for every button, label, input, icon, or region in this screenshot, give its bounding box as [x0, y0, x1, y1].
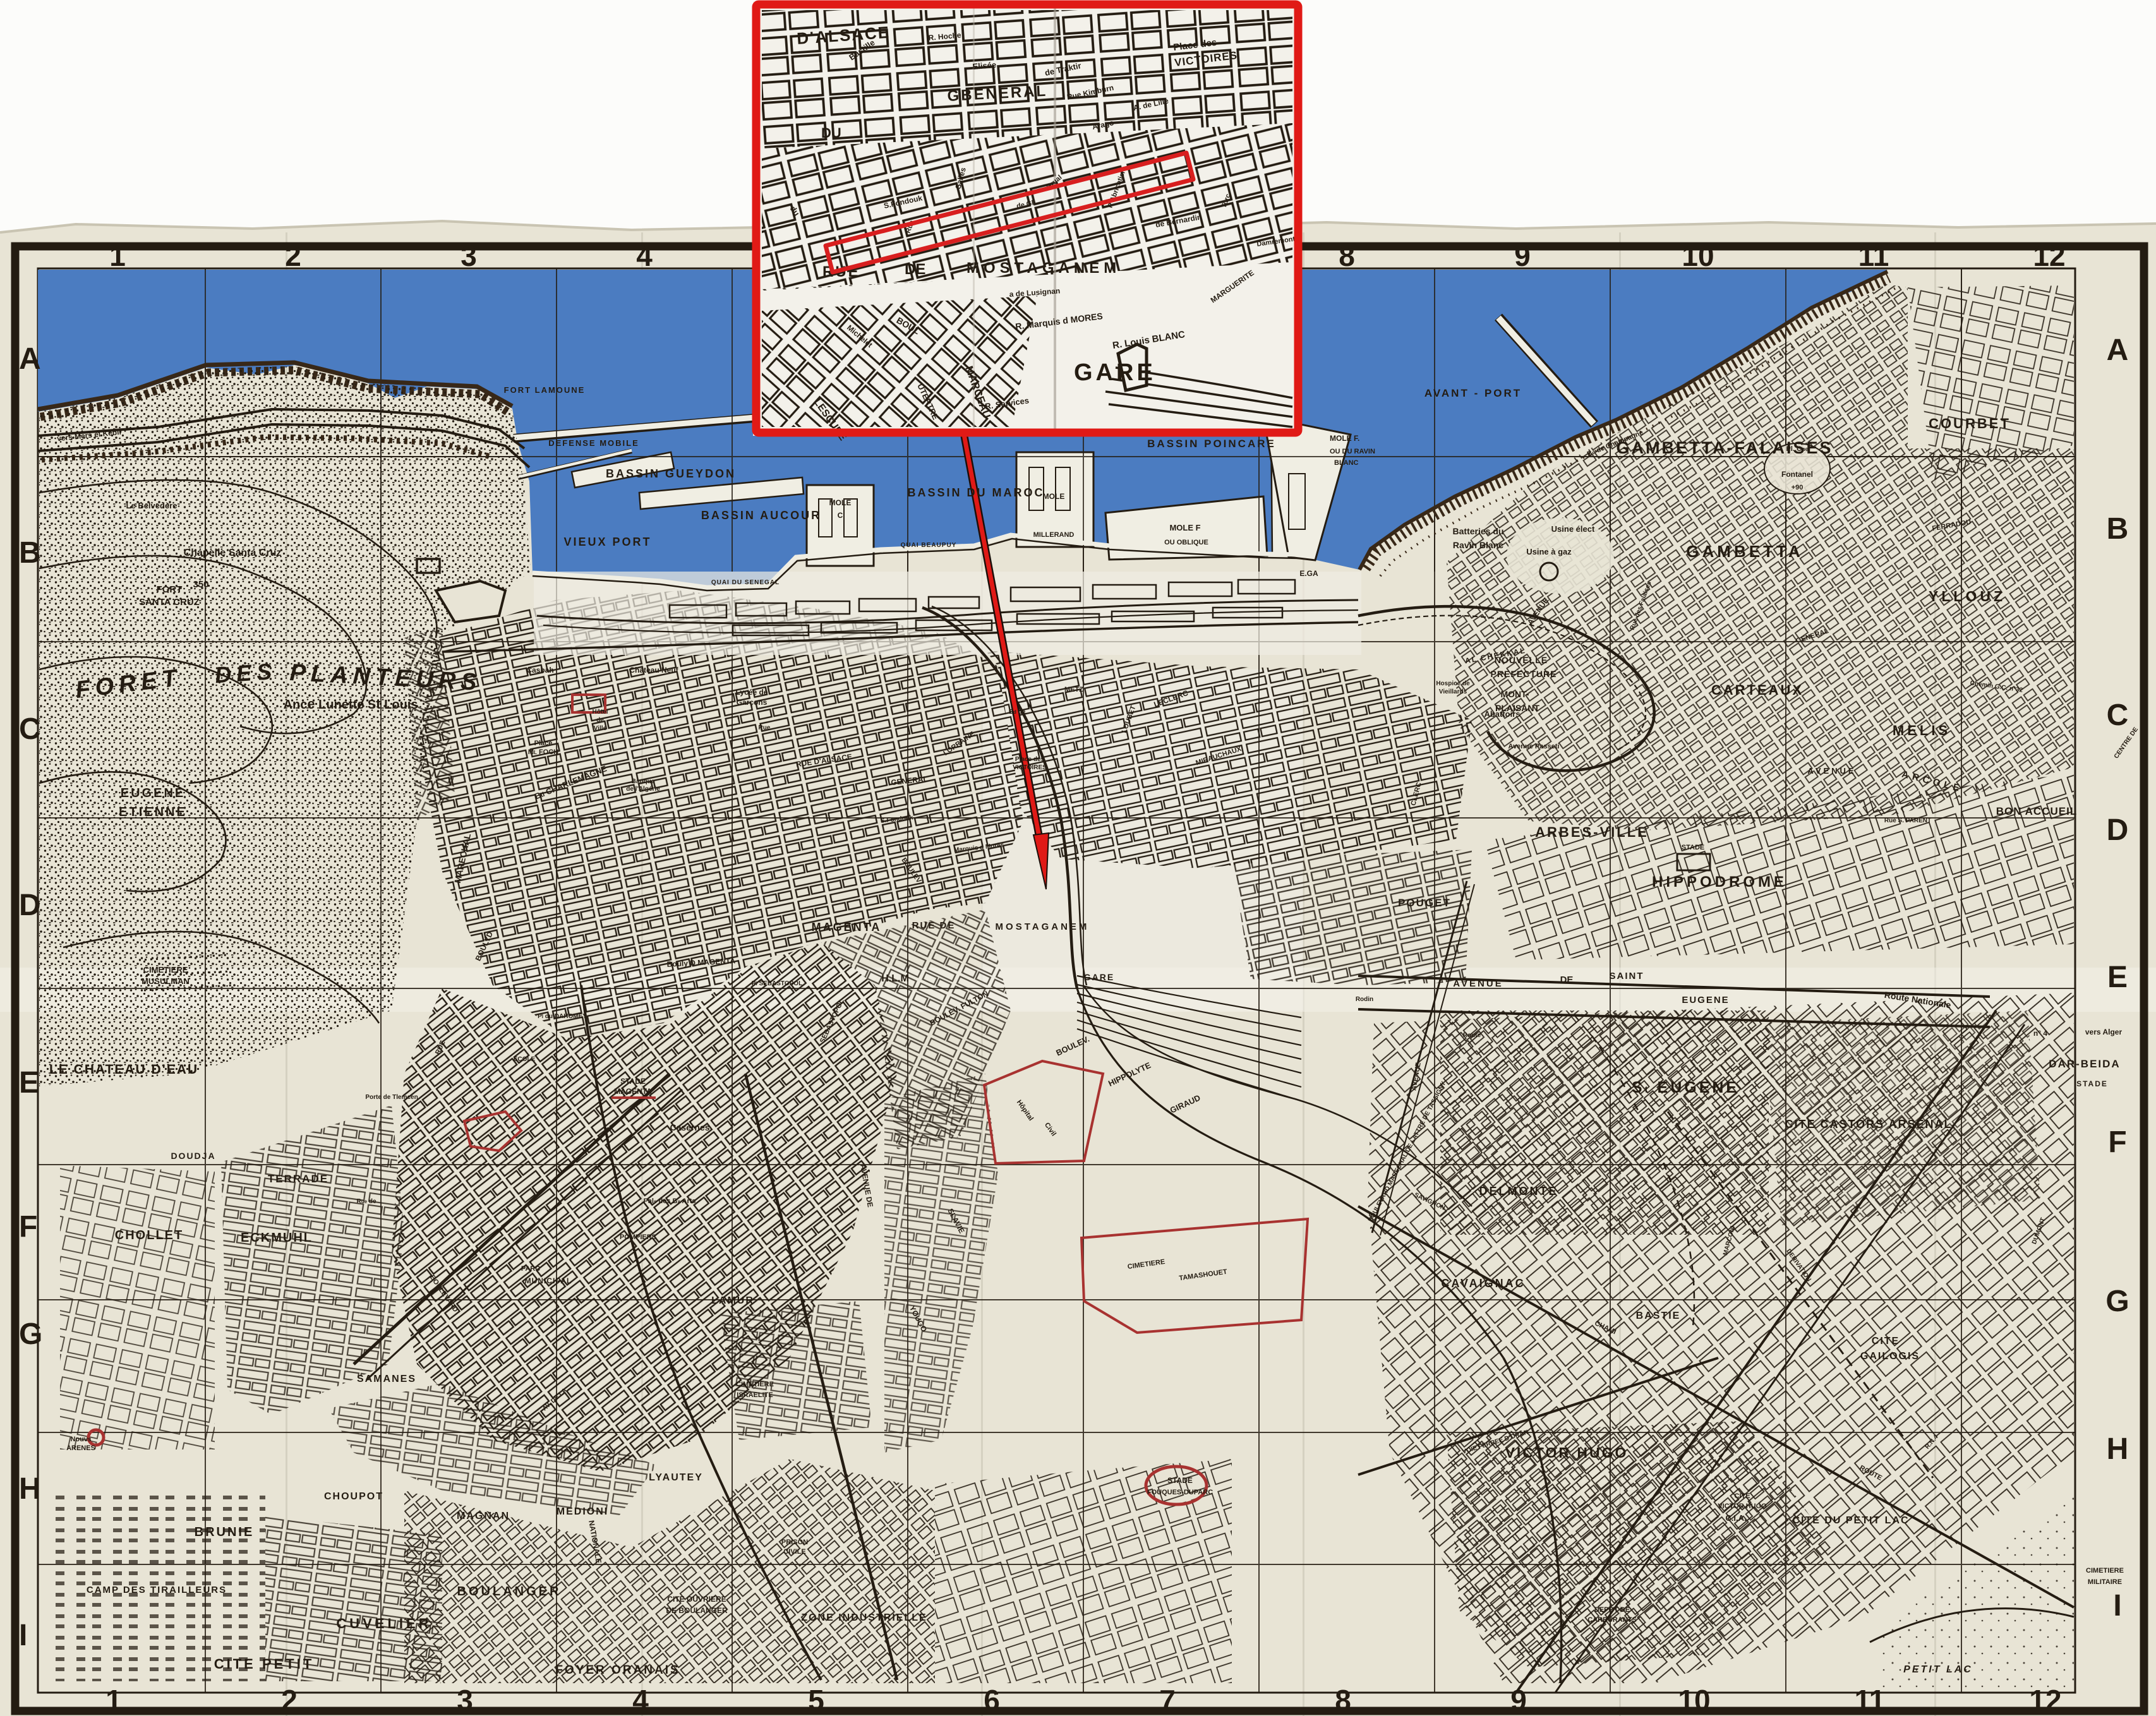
svg-text:PETIT LAC: PETIT LAC — [1903, 1664, 1973, 1675]
svg-text:Chateau Neuf: Chateau Neuf — [629, 666, 678, 675]
svg-text:Pl du DAHOMEY: Pl du DAHOMEY — [538, 1013, 587, 1020]
svg-text:A: A — [19, 342, 41, 376]
svg-text:Casernes: Casernes — [670, 1122, 709, 1132]
svg-text:VICTOR HUGO: VICTOR HUGO — [1505, 1444, 1629, 1461]
svg-text:MUSULMAN: MUSULMAN — [142, 976, 190, 986]
svg-text:DE BOULANGER: DE BOULANGER — [666, 1606, 728, 1615]
svg-text:Chapelle Santa Cruz: Chapelle Santa Cruz — [184, 548, 282, 558]
svg-text:MONT-: MONT- — [1500, 689, 1529, 699]
svg-text:C: C — [19, 712, 41, 746]
svg-text:ISRAELITE: ISRAELITE — [737, 1391, 773, 1399]
svg-text:1: 1 — [109, 239, 126, 272]
svg-text:MELIS: MELIS — [1893, 723, 1951, 738]
svg-text:FORT LAMOUNE: FORT LAMOUNE — [504, 385, 586, 395]
svg-text:CIMETIERE: CIMETIERE — [2086, 1567, 2124, 1575]
svg-text:MILLERAND: MILLERAND — [1033, 531, 1075, 539]
svg-text:3: 3 — [461, 239, 477, 272]
svg-text:MOSTAGANEM: MOSTAGANEM — [967, 260, 1121, 277]
svg-text:Porte de Tlemcen: Porte de Tlemcen — [365, 1094, 418, 1101]
svg-text:E: E — [19, 1066, 39, 1100]
svg-text:Lycée de: Lycée de — [736, 688, 768, 697]
svg-text:Casbah: Casbah — [526, 666, 553, 675]
svg-text:CITE PETIT: CITE PETIT — [214, 1656, 315, 1672]
svg-text:BASSIN POINCARE: BASSIN POINCARE — [1147, 438, 1276, 450]
svg-text:MOSTAGANEM: MOSTAGANEM — [996, 921, 1090, 932]
svg-text:SAINT: SAINT — [1610, 971, 1644, 981]
svg-text:Route: Route — [1463, 1032, 1481, 1039]
svg-text:EUGENE: EUGENE — [121, 786, 185, 800]
svg-text:A: A — [2107, 333, 2129, 367]
svg-text:ARBES-VILLE: ARBES-VILLE — [1535, 824, 1649, 840]
svg-text:11: 11 — [1855, 1684, 1886, 1716]
svg-text:Banque: Banque — [632, 778, 655, 785]
svg-text:Nouvs: Nouvs — [70, 1436, 92, 1443]
svg-text:QUAI DU SENEGAL: QUAI DU SENEGAL — [711, 579, 780, 586]
svg-text:Fontanel: Fontanel — [1781, 470, 1813, 479]
svg-text:MAGNAN: MAGNAN — [457, 1511, 510, 1521]
svg-text:n° 4: n° 4 — [2033, 1029, 2047, 1038]
svg-text:HIPPODROME: HIPPODROME — [1652, 873, 1787, 891]
svg-text:Hospice de: Hospice de — [1436, 680, 1470, 687]
svg-text:BASSIN GUEYDON: BASSIN GUEYDON — [606, 467, 736, 480]
svg-text:4: 4 — [636, 239, 653, 272]
svg-text:Abattoirs: Abattoirs — [1484, 709, 1520, 719]
svg-text:I: I — [19, 1619, 27, 1652]
svg-text:Usine à gaz: Usine à gaz — [1526, 547, 1572, 556]
svg-text:G: G — [2105, 1285, 2129, 1318]
svg-text:10: 10 — [1682, 239, 1714, 272]
svg-text:350: 350 — [193, 579, 208, 590]
svg-text:FOYER ORANAIS: FOYER ORANAIS — [555, 1664, 680, 1677]
svg-text:OU OBLIQUE: OU OBLIQUE — [1164, 539, 1208, 546]
svg-text:CITE DU PETIT LAC: CITE DU PETIT LAC — [1792, 1515, 1909, 1526]
svg-text:DEFENSE MOBILE: DEFENSE MOBILE — [548, 438, 639, 448]
svg-text:BASSIN AUCOUR: BASSIN AUCOUR — [701, 509, 821, 522]
svg-text:VICTOIRES: VICTOIRES — [1013, 764, 1047, 771]
svg-text:GARE: GARE — [1084, 972, 1114, 982]
svg-text:Pals des Bx Arts: Pals des Bx Arts — [643, 1197, 696, 1205]
svg-text:10: 10 — [1678, 1684, 1710, 1716]
svg-text:2: 2 — [281, 1684, 298, 1716]
svg-text:Ance Lunette St Louis: Ance Lunette St Louis — [284, 696, 418, 712]
svg-text:CITE: CITE — [1734, 1492, 1750, 1500]
svg-text:6: 6 — [984, 1684, 1000, 1716]
svg-text:CITE: CITE — [1872, 1336, 1900, 1347]
svg-text:Rodin: Rodin — [1356, 996, 1373, 1003]
svg-text:Batteries du: Batteries du — [1453, 526, 1504, 536]
svg-text:ZONE INDUSTRIELLE: ZONE INDUSTRIELLE — [801, 1612, 927, 1623]
svg-text:STADE: STADE — [620, 1077, 646, 1086]
svg-text:STADE: STADE — [1682, 844, 1704, 851]
svg-text:C: C — [2107, 699, 2129, 732]
svg-text:3: 3 — [457, 1684, 473, 1716]
svg-text:H: H — [2107, 1432, 2129, 1466]
svg-text:Pl SEBASTOPOL: Pl SEBASTOPOL — [752, 980, 802, 987]
svg-text:+90: +90 — [1792, 484, 1804, 491]
svg-text:MEDIONI: MEDIONI — [557, 1506, 608, 1517]
svg-text:MILITAIRE: MILITAIRE — [2088, 1578, 2122, 1586]
svg-text:CIMETIERE: CIMETIERE — [736, 1381, 774, 1388]
svg-text:H.L.M: H.L.M — [881, 973, 909, 984]
svg-text:AVENUE: AVENUE — [1453, 978, 1503, 989]
svg-text:CAVAIGNAC: CAVAIGNAC — [1441, 1277, 1525, 1290]
svg-text:B: B — [19, 536, 41, 570]
svg-text:LYAUTEY: LYAUTEY — [649, 1472, 703, 1483]
svg-text:BON ACCUEIL: BON ACCUEIL — [1996, 805, 2077, 817]
svg-text:ECOLE: ECOLE — [514, 1056, 536, 1063]
svg-text:B: B — [2107, 512, 2129, 546]
svg-text:TERRADE: TERRADE — [268, 1173, 328, 1185]
svg-text:CARTEAUX: CARTEAUX — [1711, 682, 1804, 698]
svg-text:Le Belvedère: Le Belvedère — [126, 501, 178, 510]
svg-text:DE: DE — [905, 261, 925, 278]
svg-text:11: 11 — [1858, 239, 1889, 272]
svg-text:AVANT - PORT: AVANT - PORT — [1424, 387, 1522, 399]
svg-text:Place des: Place des — [1015, 756, 1045, 763]
svg-text:GARE: GARE — [1074, 359, 1156, 386]
svg-text:CITE OUVRIERE: CITE OUVRIERE — [667, 1595, 726, 1604]
svg-text:COURBET: COURBET — [1929, 416, 2011, 431]
svg-text:BASSIN DU MAROC: BASSIN DU MAROC — [907, 486, 1044, 499]
svg-text:C.I.A.: C.I.A. — [1725, 1513, 1746, 1523]
svg-text:MOLE: MOLE — [829, 498, 852, 507]
svg-text:12: 12 — [2033, 239, 2065, 272]
svg-text:PREFECTURE: PREFECTURE — [1491, 669, 1557, 679]
svg-text:DU: DU — [821, 125, 841, 141]
svg-text:MUNICIPAL: MUNICIPAL — [525, 1276, 572, 1285]
svg-text:4: 4 — [632, 1684, 649, 1716]
svg-text:BLANC: BLANC — [1334, 459, 1359, 467]
svg-text:CHOLLET: CHOLLET — [115, 1228, 183, 1242]
svg-text:STADE: STADE — [2076, 1079, 2108, 1088]
svg-text:BRUNIE: BRUNIE — [195, 1525, 255, 1539]
svg-text:METZ: METZ — [1064, 686, 1083, 693]
svg-text:LAMUR: LAMUR — [711, 1295, 754, 1306]
svg-text:MAGENTA: MAGENTA — [614, 1087, 652, 1096]
svg-text:EUGENE: EUGENE — [1682, 995, 1729, 1005]
svg-text:YLLOUZ: YLLOUZ — [1929, 588, 2006, 604]
svg-text:7: 7 — [1159, 1684, 1176, 1716]
svg-text:Pl. Cne: Pl. Cne — [1786, 445, 1809, 453]
svg-text:E.GA: E.GA — [1299, 569, 1318, 578]
svg-text:CHOUPOT: CHOUPOT — [324, 1491, 383, 1502]
svg-text:FORT: FORT — [157, 584, 183, 595]
svg-text:STADE: STADE — [1167, 1476, 1193, 1485]
svg-text:VICTOR HUGO: VICTOR HUGO — [1718, 1503, 1767, 1510]
svg-text:Avenue Passeti: Avenue Passeti — [1509, 743, 1560, 750]
svg-text:Rue: Rue — [759, 724, 771, 731]
svg-text:Vieillards: Vieillards — [1439, 688, 1467, 695]
svg-text:Usine élect: Usine élect — [1551, 524, 1595, 534]
svg-text:BOULANGER: BOULANGER — [457, 1585, 562, 1599]
svg-text:GAILOGIS: GAILOGIS — [1860, 1351, 1920, 1362]
svg-text:DES: DES — [214, 658, 278, 688]
svg-text:vers Alger: vers Alger — [2085, 1028, 2123, 1036]
svg-text:F: F — [19, 1210, 37, 1244]
svg-text:DE: DE — [1560, 975, 1574, 985]
svg-text:CIMETIERE: CIMETIERE — [143, 965, 188, 975]
svg-text:ETIENNE: ETIENNE — [119, 805, 187, 819]
svg-text:Bd de: Bd de — [1009, 709, 1026, 716]
svg-text:CAMP DES TIRAILLEURS: CAMP DES TIRAILLEURS — [87, 1585, 227, 1595]
svg-text:CARBURANTS: CARBURANTS — [1587, 1616, 1637, 1624]
svg-text:12: 12 — [2029, 1684, 2061, 1716]
svg-text:MOLE: MOLE — [1043, 492, 1065, 501]
svg-text:CITE CASTORS ARSENAL: CITE CASTORS ARSENAL — [1785, 1118, 1952, 1131]
svg-text:MAGENTA: MAGENTA — [812, 921, 882, 933]
svg-text:PRISON: PRISON — [781, 1539, 808, 1546]
svg-text:1: 1 — [105, 1684, 122, 1716]
svg-text:G: G — [19, 1317, 42, 1351]
svg-text:MOLE F: MOLE F — [1169, 523, 1200, 532]
svg-text:DOUDJA: DOUDJA — [171, 1151, 215, 1161]
svg-text:H: H — [19, 1472, 41, 1506]
svg-text:Rue de: Rue de — [356, 1198, 376, 1205]
svg-text:D: D — [2107, 813, 2129, 847]
svg-text:ML FOCH: ML FOCH — [528, 748, 558, 756]
svg-text:9: 9 — [1514, 239, 1531, 272]
svg-text:Hôtel: Hôtel — [593, 709, 608, 716]
svg-text:8: 8 — [1335, 1684, 1351, 1716]
svg-text:POUGET: POUGET — [1398, 897, 1451, 909]
svg-text:DELMONTE: DELMONTE — [1479, 1185, 1558, 1197]
svg-text:QUAI BEAUPUY: QUAI BEAUPUY — [901, 542, 957, 549]
svg-text:Garçons: Garçons — [737, 698, 768, 707]
svg-text:RUE DE: RUE DE — [912, 920, 956, 931]
svg-text:F: F — [2108, 1125, 2126, 1159]
svg-text:CIVILE: CIVILE — [783, 1548, 805, 1556]
svg-text:FOUQUES-DUPARC: FOUQUES-DUPARC — [1147, 1489, 1213, 1496]
svg-text:D: D — [19, 889, 41, 922]
svg-text:E: E — [2107, 961, 2128, 994]
svg-text:LE CHATEAU D'EAU: LE CHATEAU D'EAU — [49, 1062, 198, 1077]
svg-text:BASTIE: BASTIE — [1636, 1311, 1681, 1321]
svg-text:de: de — [596, 717, 604, 724]
svg-text:Place: Place — [534, 740, 553, 747]
svg-text:ECKMUHL: ECKMUHL — [241, 1231, 313, 1245]
svg-text:Ravin Blanc: Ravin Blanc — [1453, 540, 1503, 550]
svg-text:OU DU RAVIN: OU DU RAVIN — [1330, 448, 1375, 455]
svg-text:2: 2 — [285, 239, 301, 272]
svg-text:DEPOT DE: DEPOT DE — [1594, 1606, 1630, 1614]
svg-text:ARENES: ARENES — [66, 1444, 95, 1452]
svg-text:Ville: Ville — [594, 725, 607, 732]
svg-text:C: C — [838, 511, 843, 520]
svg-text:8: 8 — [1339, 239, 1355, 272]
svg-text:9: 9 — [1510, 1684, 1527, 1716]
svg-text:Rue S. PARENT: Rue S. PARENT — [1884, 817, 1931, 824]
svg-text:SAMANES: SAMANES — [357, 1374, 416, 1384]
svg-text:VIEUX PORT: VIEUX PORT — [563, 536, 651, 548]
svg-text:SANTA CRUZ: SANTA CRUZ — [139, 597, 200, 608]
svg-text:CUVELIER: CUVELIER — [336, 1616, 431, 1631]
svg-text:GAMBETTA: GAMBETTA — [1686, 542, 1803, 561]
svg-text:I: I — [2113, 1589, 2121, 1623]
svg-text:de l'Algérie: de l'Algérie — [626, 786, 660, 793]
svg-text:5: 5 — [808, 1684, 824, 1716]
svg-text:PARC: PARC — [521, 1265, 540, 1273]
svg-text:DAR-BEIDA: DAR-BEIDA — [2049, 1058, 2120, 1070]
svg-text:AVENUE: AVENUE — [1807, 766, 1856, 776]
svg-text:MOLE F.: MOLE F. — [1330, 434, 1359, 443]
svg-text:POMPIERS: POMPIERS — [620, 1233, 656, 1241]
